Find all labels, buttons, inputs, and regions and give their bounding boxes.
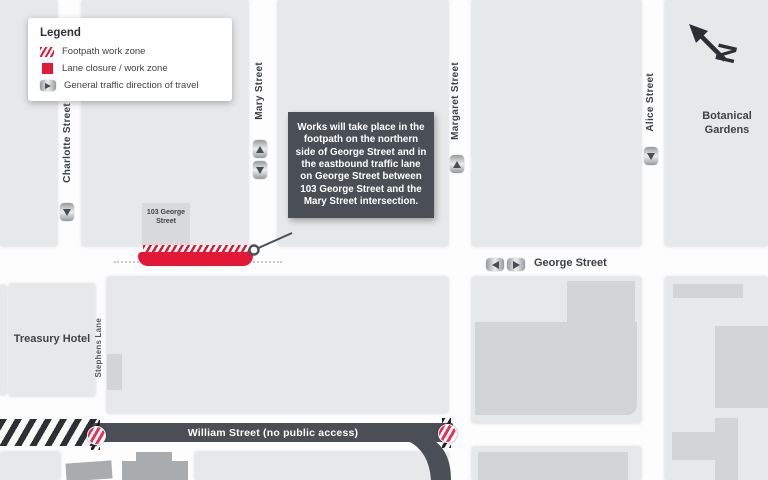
street-label-alice: Alice Street <box>645 73 656 132</box>
william-street-closed-road: William Street (no public access) <box>93 423 453 442</box>
traffic-direction-icon <box>40 80 56 91</box>
building <box>567 281 635 323</box>
north-label: N <box>709 40 743 66</box>
road-curve-south <box>395 441 465 480</box>
legend-item-lane-closure: Lane closure / work zone <box>40 63 220 74</box>
legend-item-label: Lane closure / work zone <box>62 63 168 74</box>
building <box>107 354 122 390</box>
street-label-george: George Street <box>534 257 607 269</box>
building <box>475 322 637 415</box>
traffic-arrow-south-icon <box>644 147 658 165</box>
legend-panel: Legend Footpath work zone Lane closure /… <box>28 18 232 101</box>
traffic-arrow-west-icon <box>486 258 504 271</box>
building <box>65 460 112 480</box>
lane-closure-work-zone <box>138 252 253 266</box>
arrow-down-icon <box>647 153 655 160</box>
traffic-arrow-north-icon <box>253 140 267 158</box>
building <box>715 418 738 480</box>
street-label-charlotte: Charlotte Street <box>62 103 73 183</box>
no-entry-sign-icon <box>438 424 457 443</box>
works-callout-text: Works will take place in the footpath on… <box>296 122 427 207</box>
footpath-hatch-icon <box>40 47 54 57</box>
building <box>122 461 188 480</box>
north-arrow-icon: N <box>683 20 747 78</box>
traffic-arrow-south-icon <box>253 161 267 179</box>
street-label-william: William Street (no public access) <box>188 427 358 439</box>
city-block <box>107 277 448 413</box>
city-block <box>0 285 6 395</box>
road-closure-hatch <box>0 419 100 446</box>
arrow-up-icon <box>256 146 264 153</box>
building-103-label: 103 George Street <box>146 208 186 226</box>
city-block <box>472 0 641 246</box>
building <box>673 284 743 298</box>
building <box>715 326 768 408</box>
legend-title: Legend <box>40 27 220 39</box>
legend-item-label: Footpath work zone <box>62 46 145 57</box>
lane-closure-icon <box>42 63 53 74</box>
arrow-left-icon <box>492 261 499 269</box>
street-label-margaret: Margaret Street <box>450 62 461 140</box>
works-callout-box: Works will take place in the footpath on… <box>288 112 434 218</box>
building <box>478 452 628 480</box>
street-label-stephens-lane: Stephens Lane <box>94 318 103 378</box>
arrow-down-icon <box>63 209 71 216</box>
traffic-arrow-south-icon <box>60 203 74 221</box>
street-label-mary: Mary Street <box>254 62 265 120</box>
roadworks-map: 103 George Street Charlotte Street Mary … <box>0 0 768 480</box>
arrow-right-icon <box>513 261 520 269</box>
arrow-right-icon <box>45 83 51 89</box>
no-entry-sign-icon <box>87 426 106 445</box>
place-label-botanical-gardens: Botanical Gardens <box>690 110 764 138</box>
legend-item-label: General traffic direction of travel <box>64 80 198 91</box>
city-block <box>0 452 60 480</box>
arrow-up-icon <box>453 161 461 168</box>
building <box>672 432 718 460</box>
place-label-treasury-hotel: Treasury Hotel <box>12 333 92 347</box>
legend-item-traffic-direction: General traffic direction of travel <box>40 80 220 91</box>
legend-item-footpath: Footpath work zone <box>40 46 220 57</box>
traffic-arrow-north-icon <box>450 155 464 173</box>
traffic-arrow-east-icon <box>507 258 525 271</box>
arrow-down-icon <box>256 167 264 174</box>
